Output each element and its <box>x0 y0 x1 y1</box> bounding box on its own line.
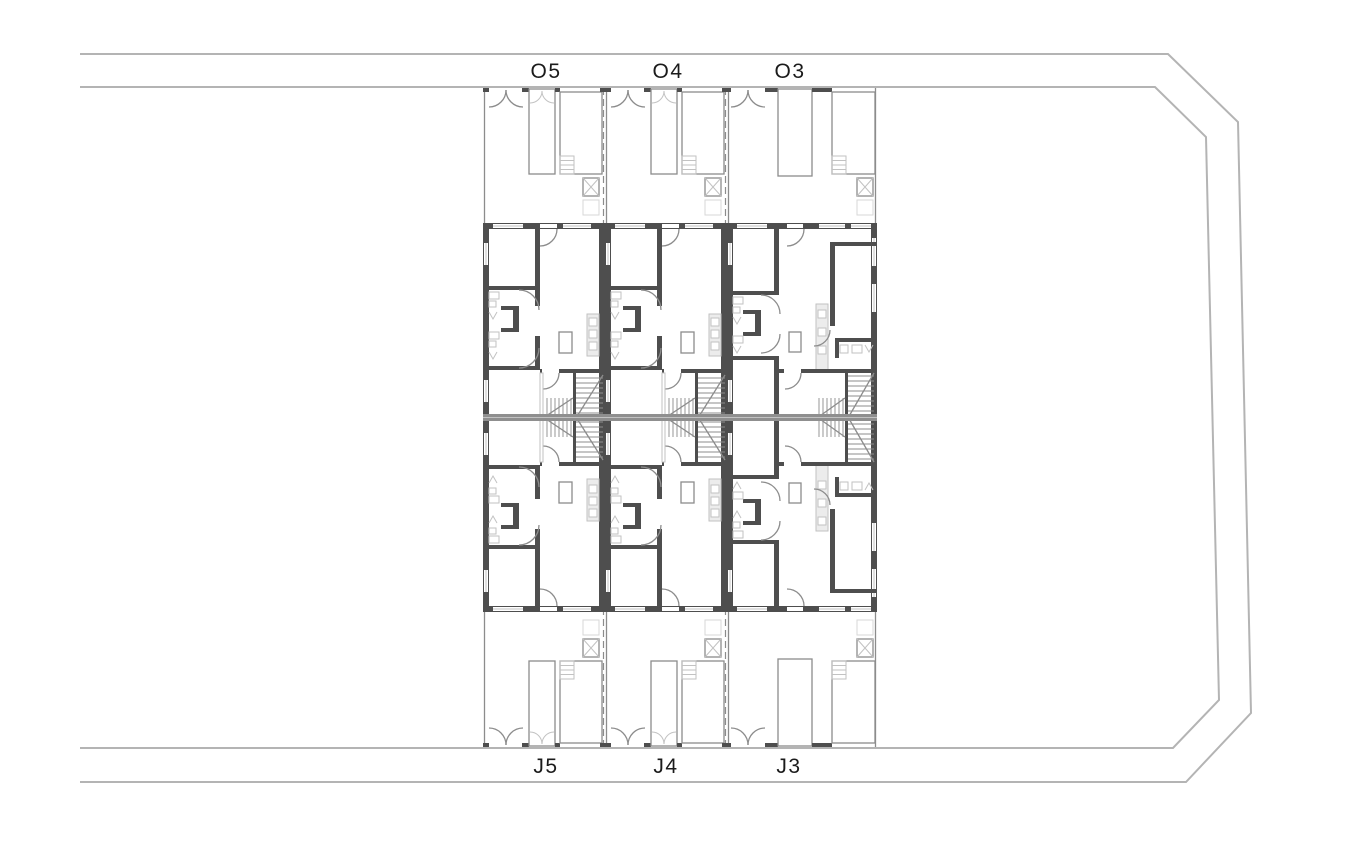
unit-J4 <box>605 417 727 748</box>
unit-J5 <box>483 417 605 748</box>
label-J5: J5 <box>533 755 558 778</box>
label-O4: O4 <box>652 60 683 83</box>
label-J3: J3 <box>776 755 801 778</box>
floor-plan-canvas: O5 O4 O3 J5 J4 J3 <box>0 0 1360 850</box>
label-O5: O5 <box>530 60 561 83</box>
label-O3: O3 <box>774 60 805 83</box>
unit-J3 <box>727 417 877 748</box>
floor-plan-page: O5 O4 O3 J5 J4 J3 <box>0 0 1360 850</box>
building-block <box>483 88 877 747</box>
label-J4: J4 <box>653 755 678 778</box>
unit-O5 <box>483 88 605 419</box>
unit-O3 <box>727 88 877 419</box>
unit-O4 <box>605 88 727 419</box>
